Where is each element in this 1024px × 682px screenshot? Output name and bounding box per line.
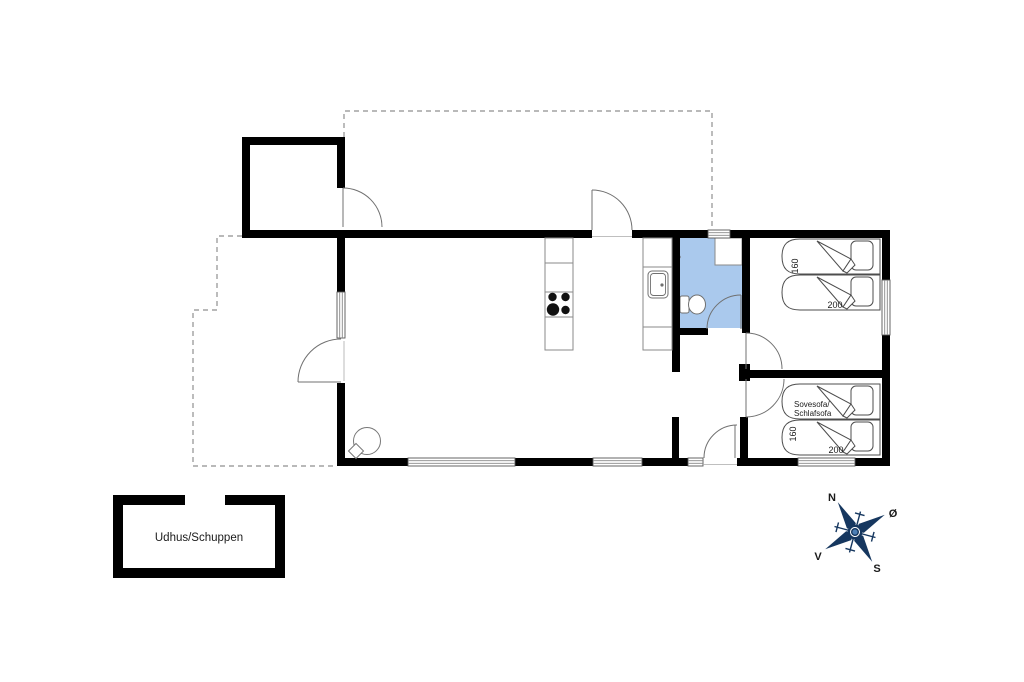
toilet-tank (680, 296, 689, 313)
wall-segment (113, 495, 185, 505)
door-arc (704, 425, 737, 458)
wall-segment (672, 238, 680, 372)
wall-segment (672, 417, 679, 458)
wall-segment (113, 568, 285, 578)
window (798, 458, 855, 466)
outbuilding-label: Udhus/Schuppen (155, 532, 243, 544)
shower-area (715, 238, 742, 265)
sofa-bed-label-line1: Sovesofa/ (794, 400, 830, 409)
wall-segment (242, 137, 345, 145)
wood-stove (349, 428, 381, 459)
terrace-outline-left (193, 236, 337, 466)
wall-segment (672, 328, 708, 335)
wall-segment (337, 383, 345, 466)
door-arc (746, 333, 782, 369)
kitchen-sink (648, 271, 668, 298)
wall-segment (740, 417, 748, 458)
window (688, 458, 703, 466)
wall-segment (742, 370, 890, 378)
compass-rose: N Ø S V (806, 483, 904, 581)
wall-segment (242, 137, 250, 238)
window (708, 230, 730, 238)
wall-segment (642, 458, 688, 466)
wall-segment (337, 230, 345, 292)
sofa-bed-label-line2: Schlafsofa (794, 409, 832, 418)
window (882, 280, 890, 335)
bed-width-label: 160 (790, 258, 800, 273)
compass-west-label: V (814, 551, 822, 563)
compass-south-label: S (873, 563, 880, 575)
door-arc (746, 379, 784, 417)
toilet-bowl (689, 295, 706, 314)
bed-width-label: 160 (788, 426, 798, 441)
wall-segment (515, 458, 593, 466)
door-arc (343, 188, 382, 227)
floor-plan-drawing: 160 200 Sovesofa/ Schlafsofa 160 200 Udh… (0, 0, 1024, 682)
compass-star (806, 483, 904, 581)
compass-east-label: Ø (889, 508, 898, 520)
door-arc (298, 339, 341, 382)
bed-length-label: 200 (827, 300, 842, 310)
window (408, 458, 515, 466)
wall-segment (337, 458, 408, 466)
wall-segment (275, 495, 285, 578)
window (337, 292, 345, 338)
walls (113, 137, 890, 578)
wall-segment (737, 458, 798, 466)
floor-plan-canvas: 160 200 Sovesofa/ Schlafsofa 160 200 Udh… (0, 0, 1024, 682)
compass-north-label: N (828, 492, 836, 504)
wall-segment (882, 335, 890, 466)
wall-segment (113, 495, 123, 578)
window (593, 458, 642, 466)
wall-segment (742, 238, 750, 333)
wall-segment (632, 230, 708, 238)
wall-segment (730, 230, 890, 238)
kitchen (545, 238, 672, 350)
wall-segment (337, 137, 345, 188)
door-arc (592, 190, 632, 230)
terrace-outline-top (344, 111, 712, 228)
kitchen-counter-left (545, 238, 573, 350)
wall-segment (882, 230, 890, 280)
bed-length-label: 200 (828, 445, 843, 455)
wall-segment (242, 230, 592, 238)
